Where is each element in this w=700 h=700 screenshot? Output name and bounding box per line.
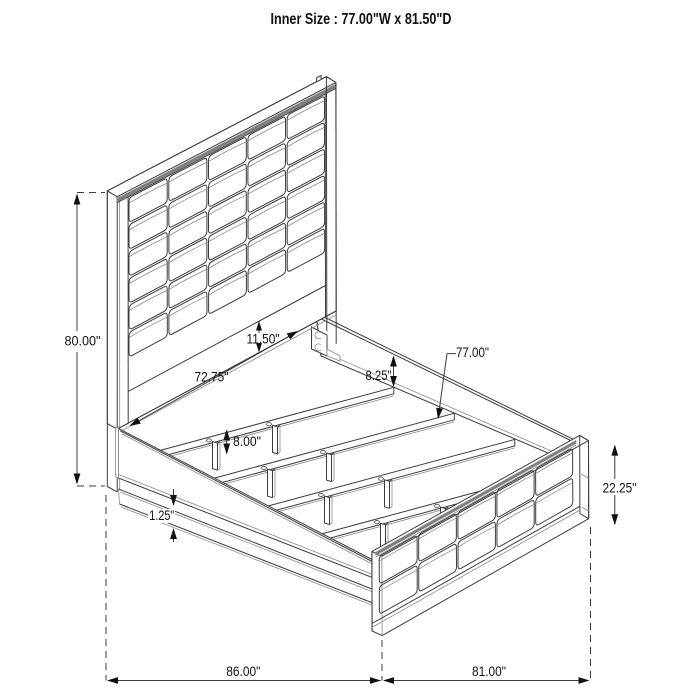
svg-text:1.25": 1.25" (149, 508, 174, 523)
svg-text:72.75": 72.75" (195, 370, 229, 385)
svg-text:Inner Size : 77.00"W x 81.50"D: Inner Size : 77.00"W x 81.50"D (271, 11, 452, 28)
svg-text:80.00": 80.00" (65, 333, 101, 348)
svg-text:8.00": 8.00" (233, 434, 261, 449)
svg-text:77.00": 77.00" (456, 345, 489, 360)
svg-text:11.50": 11.50" (247, 332, 280, 347)
svg-text:8.25": 8.25" (366, 368, 392, 383)
svg-text:22.25": 22.25" (603, 481, 637, 496)
svg-text:81.00": 81.00" (472, 664, 506, 679)
svg-text:86.00": 86.00" (226, 664, 260, 679)
